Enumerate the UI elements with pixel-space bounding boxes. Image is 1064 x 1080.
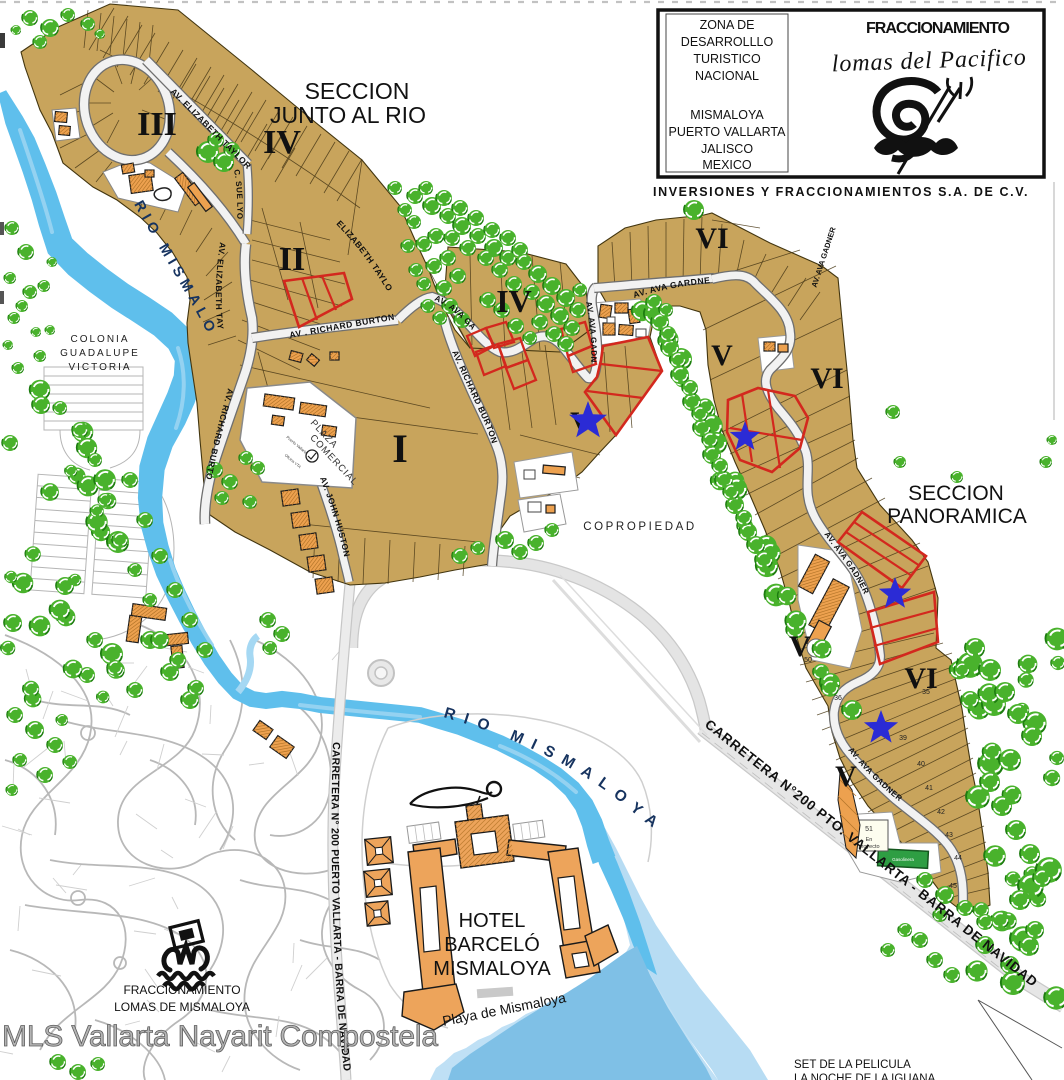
svg-text:MISMALOYA: MISMALOYA	[690, 108, 764, 122]
svg-text:VI: VI	[810, 362, 843, 395]
svg-text:PANORAMICA: PANORAMICA	[887, 505, 1027, 528]
svg-text:MEXICO: MEXICO	[702, 158, 752, 172]
svg-text:I: I	[392, 426, 408, 471]
svg-text:PUERTO VALLARTA: PUERTO VALLARTA	[669, 125, 787, 139]
svg-text:44: 44	[954, 855, 962, 862]
svg-text:40: 40	[917, 761, 925, 768]
svg-text:SET DE LA PELICULA: SET DE LA PELICULA	[794, 1059, 911, 1071]
svg-text:BARCELÓ: BARCELÓ	[444, 933, 540, 956]
svg-text:VICTORIA: VICTORIA	[68, 362, 131, 373]
svg-text:II: II	[279, 241, 305, 278]
svg-text:HOTEL: HOTEL	[459, 910, 526, 932]
svg-text:VI: VI	[695, 222, 728, 255]
svg-text:SECCION: SECCION	[908, 482, 1004, 505]
svg-text:V: V	[835, 760, 857, 793]
svg-text:SECCION: SECCION	[305, 78, 410, 104]
svg-text:VI: VI	[904, 662, 937, 695]
svg-text:41: 41	[925, 785, 933, 792]
svg-text:45: 45	[949, 883, 957, 890]
svg-text:NACIONAL: NACIONAL	[695, 69, 759, 83]
svg-text:43: 43	[945, 832, 953, 839]
svg-text:JUNTO AL RIO: JUNTO AL RIO	[270, 102, 426, 128]
svg-text:INVERSIONES Y FRACCIONAMIENTOS: INVERSIONES Y FRACCIONAMIENTOS S.A. DE C…	[653, 185, 1029, 199]
svg-text:FRACCIONAMIENTO: FRACCIONAMIENTO	[866, 20, 1010, 37]
svg-text:39: 39	[899, 735, 907, 742]
svg-text:LOMAS DE MISMALOYA: LOMAS DE MISMALOYA	[114, 1000, 250, 1014]
svg-text:TURISTICO: TURISTICO	[693, 52, 761, 66]
svg-text:V: V	[711, 339, 733, 372]
svg-text:III: III	[137, 106, 177, 143]
svg-text:51: 51	[865, 826, 873, 833]
svg-text:LA NOCHE DE LA IGUANA: LA NOCHE DE LA IGUANA	[794, 1073, 936, 1080]
svg-text:IV: IV	[263, 124, 301, 161]
svg-text:MISMALOYA: MISMALOYA	[433, 958, 551, 980]
svg-text:MLS Vallarta Nayarit Compostel: MLS Vallarta Nayarit Compostela	[2, 1020, 438, 1053]
svg-text:Gasolinera: Gasolinera	[892, 857, 914, 862]
svg-text:IV: IV	[496, 283, 532, 319]
svg-text:DESARROLLLO: DESARROLLLO	[681, 35, 774, 49]
svg-text:COLONIA: COLONIA	[70, 334, 129, 345]
svg-text:COPROPIEDAD: COPROPIEDAD	[583, 521, 697, 533]
svg-text:36: 36	[834, 695, 842, 702]
svg-text:42: 42	[937, 809, 945, 816]
svg-text:GUADALUPE: GUADALUPE	[60, 348, 140, 359]
svg-text:35: 35	[922, 689, 930, 696]
svg-text:JALISCO: JALISCO	[701, 142, 753, 156]
svg-text:50: 50	[804, 657, 812, 664]
svg-text:ZONA DE: ZONA DE	[700, 18, 755, 32]
